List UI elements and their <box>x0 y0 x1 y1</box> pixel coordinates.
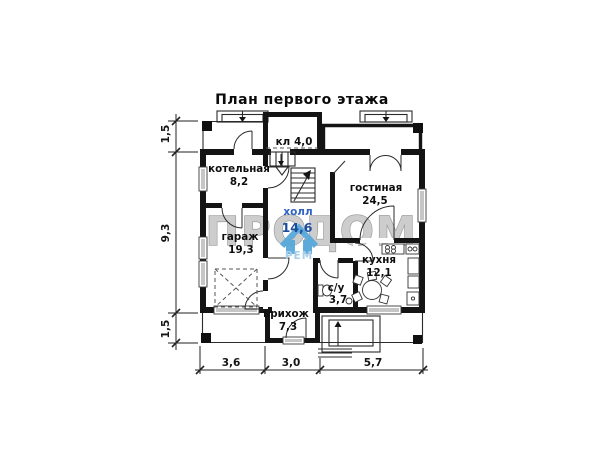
garage-window-1 <box>199 237 207 259</box>
living-window <box>418 189 426 222</box>
hall-room-area: 14,6 <box>282 220 313 235</box>
entry-room-area: 7,3 <box>279 321 297 333</box>
wall-wc-left <box>313 258 318 307</box>
boiler-room-label: котельная <box>208 163 270 175</box>
dim-left-middle: 9,3 <box>160 224 172 243</box>
hall-room-label: холл <box>283 206 312 218</box>
floor-plan-page: ПРО ДОМ План первого этажа <box>0 0 600 471</box>
logo-sub-text: РЕМ <box>285 250 313 262</box>
boiler-room-area: 8,2 <box>230 176 248 188</box>
dim-left-bottom: 1,5 <box>160 320 172 339</box>
dim-bottom-center: 3,0 <box>282 357 301 369</box>
living-room-area: 24,5 <box>362 195 387 207</box>
wc-room-label: с/у <box>328 282 345 294</box>
dim-left-top: 1,5 <box>160 125 172 144</box>
wc-room-area: 3,7 <box>329 294 347 306</box>
dim-bottom-right: 5,7 <box>364 357 383 369</box>
column-top-left <box>202 121 212 131</box>
column-top-right <box>413 123 423 133</box>
floor-plan-drawing: ПРО ДОМ План первого этажа <box>0 0 600 471</box>
kitchen-room-label: кухня <box>362 254 396 266</box>
closet-top-wall <box>263 112 322 117</box>
dim-bottom-left: 3,6 <box>222 357 241 369</box>
page-title: План первого этажа <box>215 92 389 108</box>
column-bottom-left <box>201 333 211 343</box>
right-wall <box>419 149 425 313</box>
kitchen-counter <box>407 258 419 305</box>
garage-room-label: гараж <box>222 231 260 243</box>
entrance-door <box>283 337 304 344</box>
closet-left-wall <box>263 112 268 152</box>
boiler-window <box>199 167 207 191</box>
entry-room-label: прихож <box>263 308 309 320</box>
garage-window-2 <box>199 261 207 287</box>
closet-right-wall <box>317 112 322 152</box>
garage-room-area: 19,3 <box>228 244 253 256</box>
stove-icon <box>382 244 419 254</box>
living-room-label: гостиная <box>350 182 402 194</box>
column-bottom-right <box>413 335 422 344</box>
kitchen-window <box>367 306 401 314</box>
kitchen-room-area: 12,1 <box>366 267 391 279</box>
closet-room-label: кл4,0 <box>276 136 313 148</box>
